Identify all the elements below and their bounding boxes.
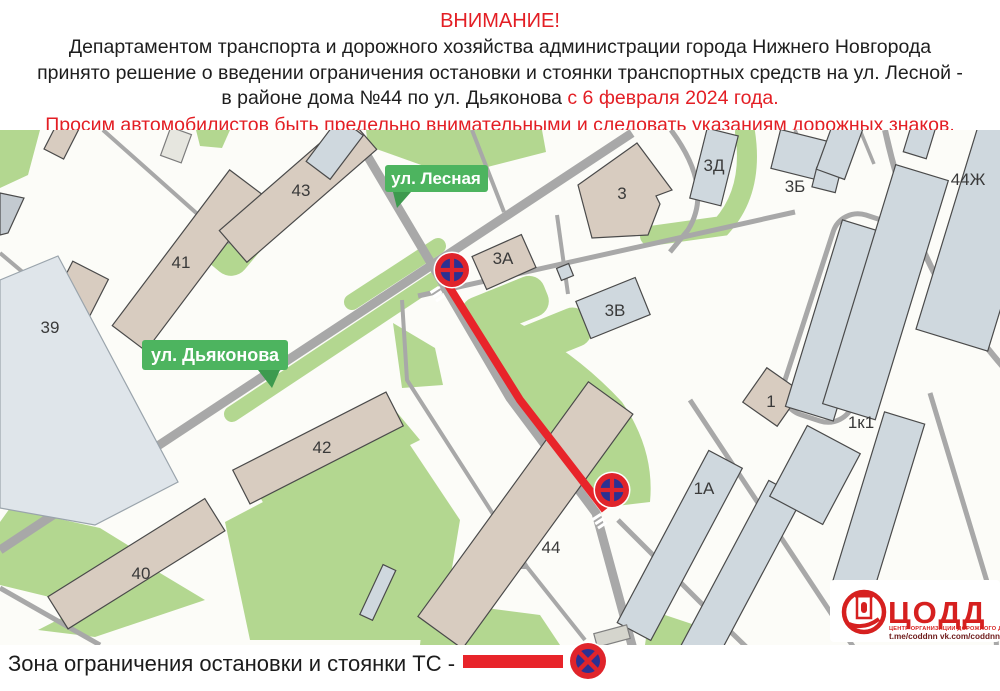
notice-line2: принято решение о введении ограничения о…	[37, 62, 963, 84]
legend-label: Зона ограничения остановки и стоянки ТС …	[8, 651, 455, 676]
building-label: 1	[766, 392, 775, 411]
building-label: 42	[313, 438, 332, 457]
street-label: ул. Дьяконова	[151, 345, 280, 365]
no-stopping-sign	[594, 472, 631, 509]
building-label: 3	[617, 184, 626, 203]
notice-line1: Департаментом транспорта и дорожного хоз…	[69, 36, 931, 58]
tower-roof-icon	[855, 594, 873, 598]
building-label: 1А	[694, 479, 715, 498]
building-label: 40	[132, 564, 151, 583]
map-container: 39 41 43 40 42 44 3 3А 3Б 3В 3Д 44Ж 1 1А…	[0, 130, 1000, 691]
notice-text: Департаментом транспорта и дорожного хоз…	[0, 35, 1000, 112]
tower-window-icon	[861, 602, 867, 613]
street-label: ул. Лесная	[391, 169, 481, 188]
city-map: 39 41 43 40 42 44 3 3А 3Б 3В 3Д 44Ж 1 1А…	[0, 130, 1000, 691]
building-label: 39	[41, 318, 60, 337]
legend: Зона ограничения остановки и стоянки ТС …	[0, 641, 1000, 691]
no-stopping-sign	[434, 252, 471, 289]
building-label: 1к1	[848, 413, 874, 432]
building-label: 3В	[605, 301, 626, 320]
logo-links: t.me/coddnn vk.com/coddnn52	[889, 632, 1000, 641]
header: ВНИМАНИЕ! Департаментом транспорта и дор…	[0, 0, 1000, 137]
codd-logo: ЦОДД ЦЕНТР ОРГАНИЗАЦИИ ДОРОЖНОГО ДВИЖЕНИ…	[830, 580, 1000, 642]
notice-line3: в районе дома №44 по ул. Дьяконова	[221, 87, 562, 109]
notice-date: с 6 февраля 2024 года.	[567, 87, 778, 109]
building-label: 44Ж	[951, 170, 986, 189]
page-title: ВНИМАНИЕ!	[0, 9, 1000, 33]
building-label: 3Б	[785, 177, 806, 196]
building-label: 44	[542, 538, 561, 557]
building-label: 3Д	[704, 156, 725, 175]
legend-line-swatch	[463, 655, 563, 668]
building-label: 3А	[493, 249, 514, 268]
building-label: 43	[292, 181, 311, 200]
building-label: 41	[172, 253, 191, 272]
notice-poster: ВНИМАНИЕ! Департаментом транспорта и дор…	[0, 0, 1000, 691]
logo-title: ЦОДД	[888, 595, 987, 630]
